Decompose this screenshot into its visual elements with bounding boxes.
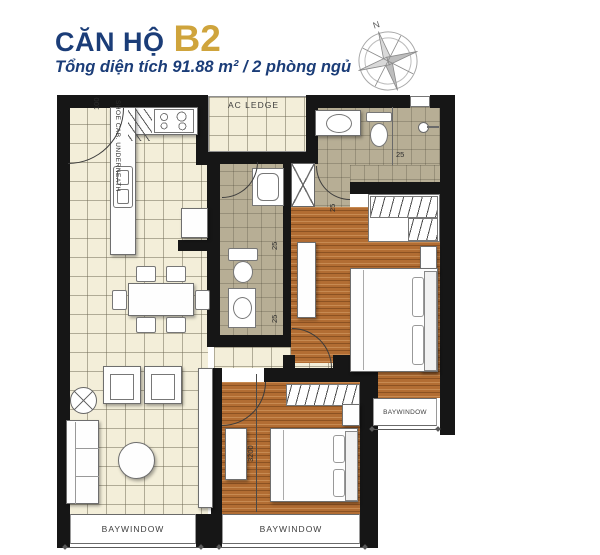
wall-living-bay-stub — [196, 514, 211, 548]
wall-bathroom2-west — [207, 155, 220, 347]
wall-right-outer — [440, 95, 455, 435]
baywindow-living: BAYWINDOW — [70, 514, 196, 544]
toilet1-bowl-icon — [370, 123, 388, 147]
dim-bath2-lower: 25 — [270, 301, 279, 323]
stove-icon — [154, 109, 194, 133]
compass-north-label: N — [372, 19, 381, 31]
master-bed-pillow-1 — [412, 277, 424, 317]
dining-chair-6 — [195, 290, 210, 310]
washer-icon — [181, 208, 208, 238]
dining-table — [128, 283, 194, 316]
dining-chair-4 — [166, 317, 186, 333]
shower-head-icon — [418, 122, 429, 133]
wall-bathroom2-south — [207, 335, 291, 347]
baywindow-living-label: BAYWINDOW — [102, 524, 165, 534]
apartment-title: CĂN HỘ — [55, 27, 165, 58]
wall-master-bath-south — [350, 182, 440, 194]
ac-ledge-label: AC LEDGE — [228, 100, 279, 110]
wall-bedroom2-east — [360, 368, 378, 548]
bedroom2-bed-headboard — [345, 431, 358, 501]
armchair-2 — [144, 366, 182, 404]
toilet2-tank-icon — [228, 248, 258, 261]
master-bed-headboard — [424, 271, 437, 371]
wall-bathroom2-east — [283, 155, 291, 347]
page-title: CĂN HỘ B2 — [55, 18, 221, 60]
baywindow-bedroom2: BAYWINDOW — [222, 514, 360, 544]
shower-arm-icon — [427, 126, 439, 128]
dim-master-door: 25 — [328, 190, 337, 212]
bedroom2-dim-line — [256, 374, 257, 512]
baywindow-bedroom2-dimline — [218, 547, 366, 548]
bedroom2-nightstand — [342, 404, 360, 426]
shower-stall-icon — [252, 168, 284, 206]
floor-master-bath-shower — [350, 165, 440, 182]
bedroom2-bed — [270, 428, 358, 502]
armchair-1 — [103, 366, 141, 404]
area-subtitle: Tổng diện tích 91.88 m² / 2 phòng ngủ — [55, 58, 351, 77]
bedroom2-dresser — [225, 428, 247, 480]
dim-master-bath: 25 — [396, 150, 404, 159]
toilet2-bowl-icon — [233, 261, 253, 283]
bedroom2-bed-pillow-1 — [333, 435, 345, 463]
closet-hangers-icon — [370, 196, 438, 218]
dim-entry: 100 — [92, 84, 101, 110]
master-bed-pillow-2 — [412, 325, 424, 365]
baywindow-master: BAYWINDOW — [373, 398, 437, 426]
sofa — [66, 420, 99, 504]
master-bath-counter — [315, 110, 361, 136]
wall-top-bath — [306, 95, 410, 108]
baywindow-living-dimline — [64, 547, 202, 548]
toilet1-tank-icon — [366, 112, 392, 122]
bathroom2-sink-icon — [228, 288, 256, 328]
bedroom2-bed-pillow-2 — [333, 469, 345, 497]
side-table-icon — [70, 387, 97, 414]
wall-laundry-stub — [178, 240, 214, 251]
dining-chair-2 — [166, 266, 186, 282]
master-bed-blanket-line — [363, 270, 364, 370]
bedroom2-bed-blanket-line — [283, 430, 284, 500]
shower-divider — [392, 107, 393, 165]
coffee-table — [118, 442, 155, 479]
dim-bath2-upper: 25 — [270, 228, 279, 250]
dim-bedroom2-width: 3200 — [246, 428, 255, 462]
dining-chair-3 — [136, 317, 156, 333]
baywindow-master-dimline — [371, 429, 439, 430]
entry-door-leaf — [128, 109, 152, 141]
dining-chair-5 — [112, 290, 127, 310]
bedroom2-wardrobe-hangers-icon — [286, 384, 360, 406]
shaft-icon — [291, 163, 315, 207]
baywindow-master-label: BAYWINDOW — [383, 409, 427, 416]
apartment-code: B2 — [174, 18, 221, 60]
window-master-bath — [410, 96, 430, 107]
baywindow-bedroom2-label: BAYWINDOW — [260, 524, 323, 534]
closet-hangers-icon-2 — [408, 218, 438, 241]
compass-rose-icon: N — [348, 16, 428, 96]
dining-chair-1 — [136, 266, 156, 282]
master-dresser — [297, 242, 316, 318]
tv-console — [198, 368, 213, 508]
master-bed — [350, 268, 438, 372]
